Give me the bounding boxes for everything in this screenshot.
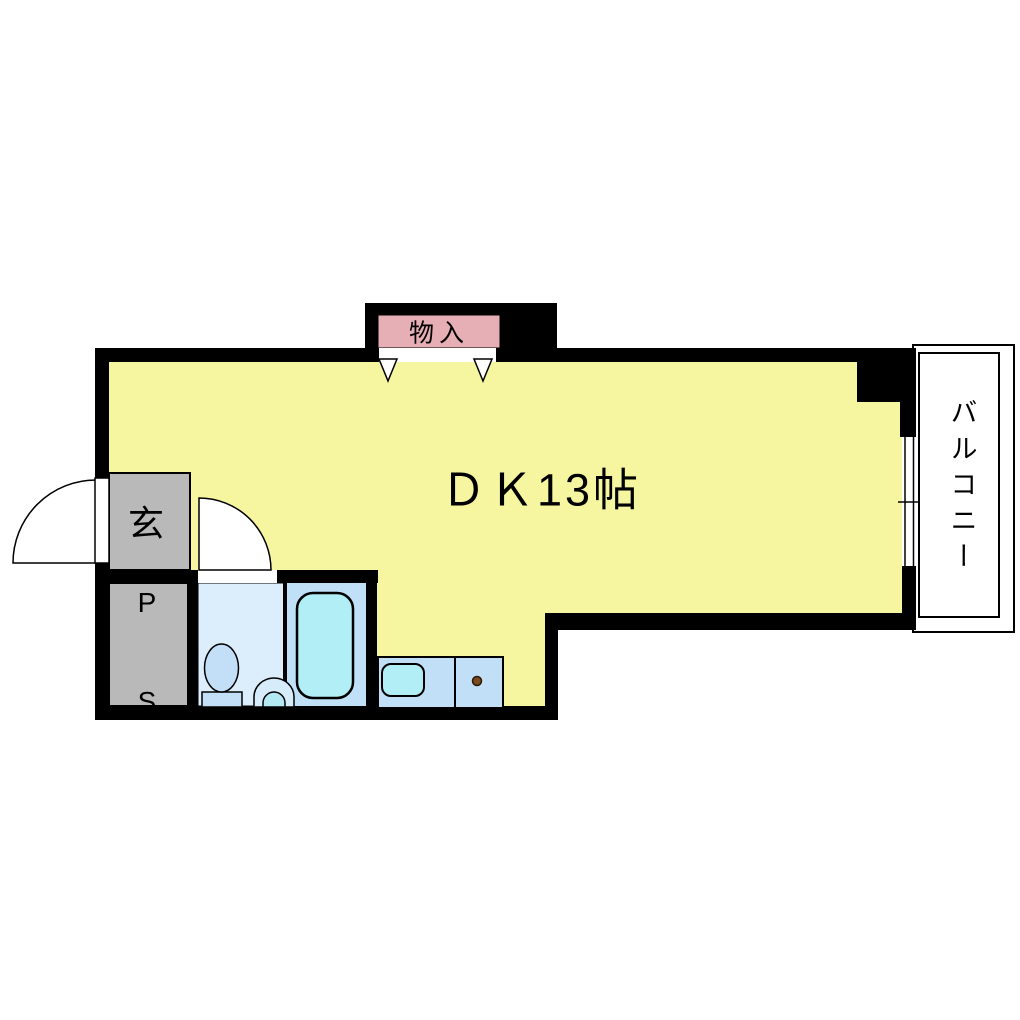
entrance-door-swing [13, 480, 96, 563]
room-label-dk13: ＤＫ13帖 [441, 468, 641, 513]
storage-label: 物入 [409, 322, 469, 347]
wall-left-upper [95, 348, 109, 478]
wall-left-lower [95, 563, 109, 720]
kitchen-sink [382, 664, 424, 696]
bathtub [297, 593, 353, 698]
pipe-shaft-label-s: S [131, 685, 162, 718]
wall-ps-bath-divider [188, 583, 198, 720]
toilet-bowl [205, 644, 239, 692]
wall-step [545, 613, 558, 720]
wall-bath-top [277, 570, 378, 583]
bathroom [198, 583, 366, 707]
pipe-shaft-label-p: P [131, 586, 162, 619]
washbasin-inner [263, 692, 285, 707]
stove-burner [473, 677, 482, 686]
wall-right-below-window [902, 566, 916, 630]
wall-pillar-lower [900, 402, 916, 437]
balcony-label: バルコニー [948, 398, 975, 578]
kitchen-counter [378, 657, 503, 708]
toilet-tank [202, 692, 242, 707]
bathroom-doorway-opening [198, 570, 277, 583]
wall-bath-right [366, 570, 377, 720]
pipe-shaft-label: P S [131, 520, 162, 784]
wall-pillar-upper [857, 348, 916, 402]
entrance-doorway-opening [95, 478, 109, 563]
wall-bottom-right [545, 613, 916, 630]
floor-plan-canvas: ＤＫ13帖 物入 玄 P S バルコニー [0, 0, 1020, 1020]
